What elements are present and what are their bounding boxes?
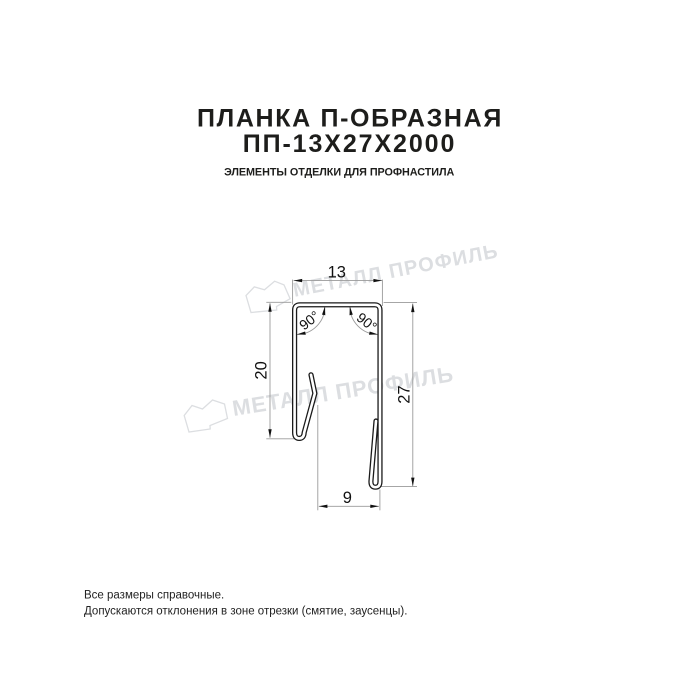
svg-text:27: 27 (396, 385, 414, 403)
svg-text:Допускаются отклонения в зоне: Допускаются отклонения в зоне отрезки (с… (84, 605, 407, 617)
svg-text:13: 13 (328, 263, 346, 281)
svg-text:20: 20 (252, 361, 270, 379)
svg-text:9: 9 (343, 489, 352, 507)
svg-text:ЭЛЕМЕНТЫ ОТДЕЛКИ ДЛЯ ПРОФНАСТИ: ЭЛЕМЕНТЫ ОТДЕЛКИ ДЛЯ ПРОФНАСТИЛА (224, 166, 454, 178)
svg-text:ПЛАНКА П-ОБРАЗНАЯ: ПЛАНКА П-ОБРАЗНАЯ (197, 105, 503, 133)
svg-text:Все размеры справочные.: Все размеры справочные. (84, 590, 224, 602)
svg-text:ПП-13Х27Х2000: ПП-13Х27Х2000 (243, 130, 457, 158)
